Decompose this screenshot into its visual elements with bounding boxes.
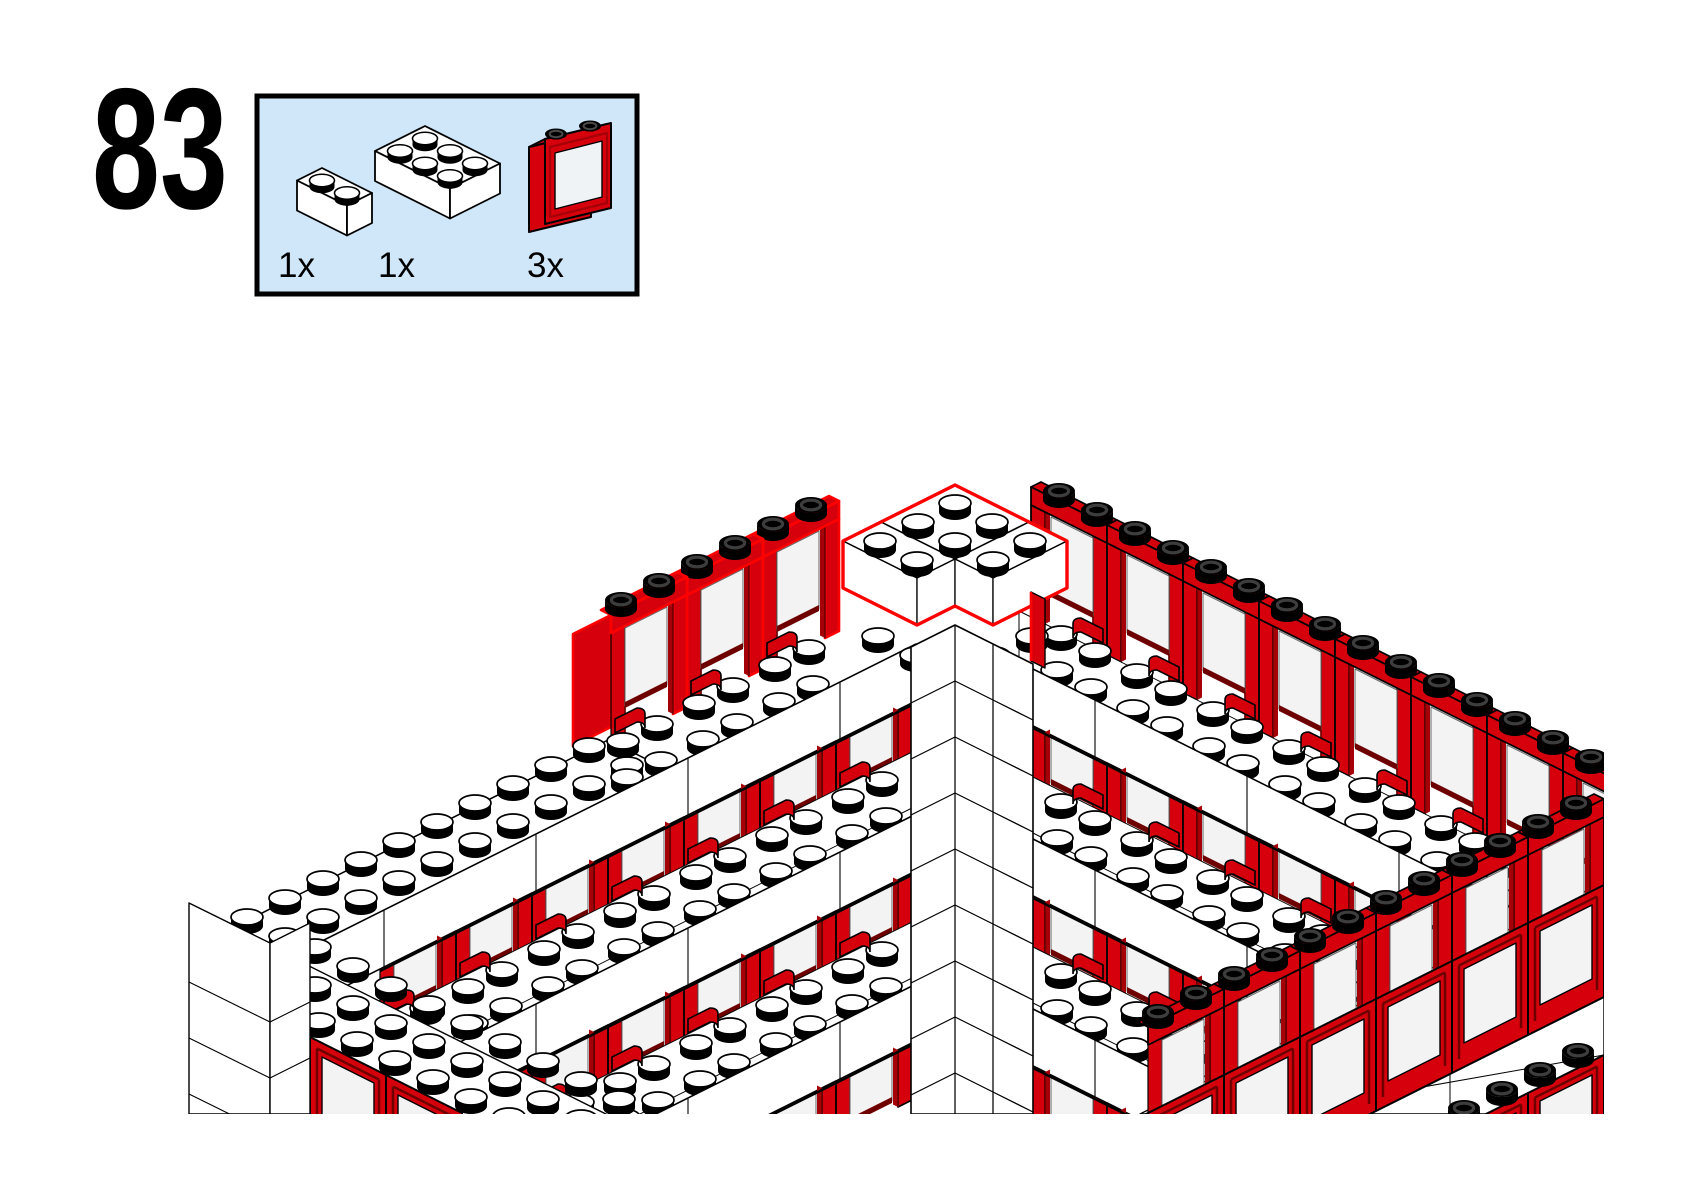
svg-text:3x: 3x bbox=[527, 246, 564, 285]
svg-text:1x: 1x bbox=[378, 246, 415, 285]
svg-text:1x: 1x bbox=[278, 246, 315, 285]
